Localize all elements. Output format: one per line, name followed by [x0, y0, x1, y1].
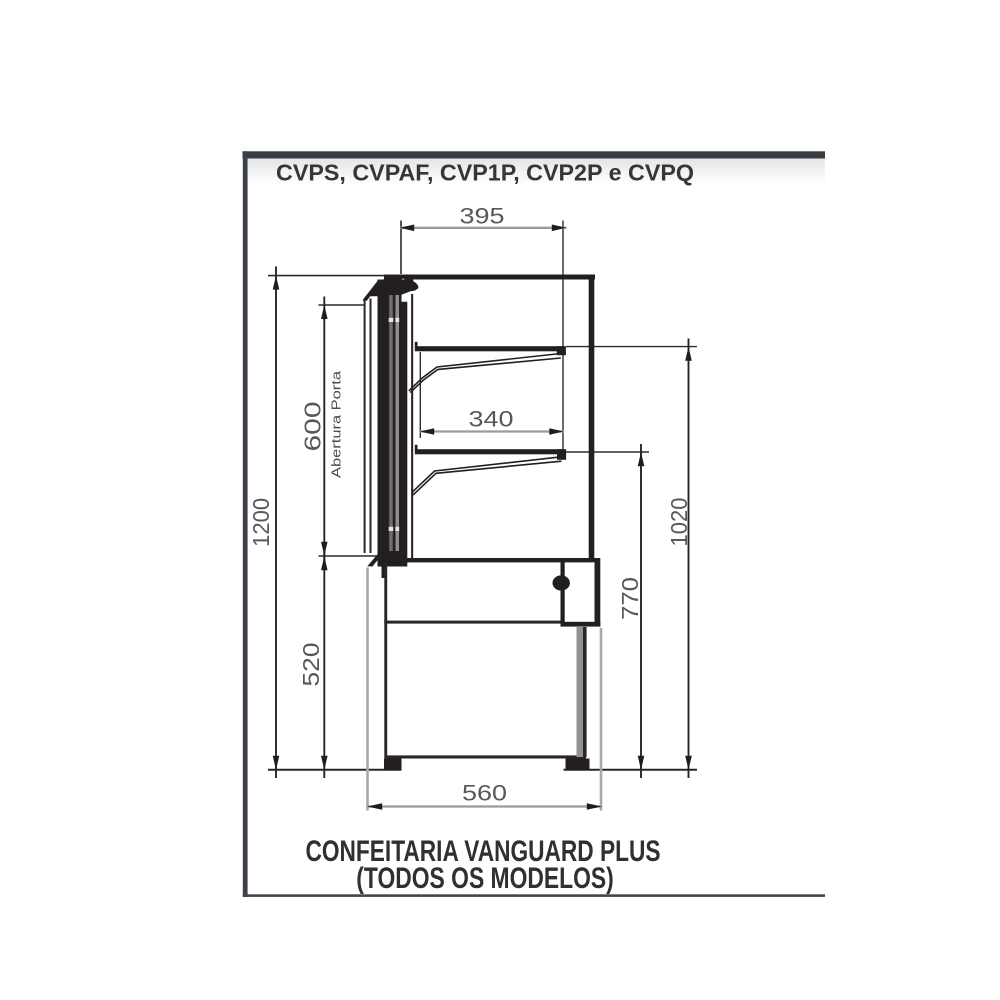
svg-text:340: 340	[469, 407, 514, 432]
svg-text:CVPS, CVPAF, CVP1P, CVP2P e CV: CVPS, CVPAF, CVP1P, CVP2P e CVPQ	[276, 160, 694, 186]
svg-text:(TODOS OS MODELOS): (TODOS OS MODELOS)	[356, 862, 614, 895]
svg-text:560: 560	[462, 781, 507, 806]
svg-text:770: 770	[617, 577, 643, 620]
svg-text:1020: 1020	[666, 498, 692, 547]
svg-text:1200: 1200	[248, 498, 274, 547]
svg-text:Abertura Porta: Abertura Porta	[329, 370, 344, 478]
svg-text:600: 600	[299, 402, 325, 452]
svg-text:395: 395	[460, 204, 505, 229]
svg-text:520: 520	[298, 643, 324, 687]
